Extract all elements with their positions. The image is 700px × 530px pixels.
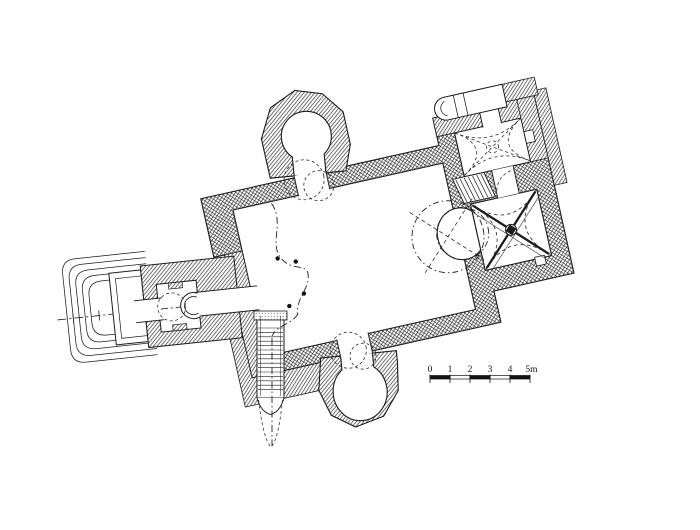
stair-landing [254, 311, 287, 320]
chapel-pilaster-north [168, 282, 183, 289]
scale-label-4: 4 [508, 365, 513, 375]
stair-fan [257, 398, 284, 415]
north-apse-doorway [294, 169, 330, 196]
north-apse [257, 86, 353, 179]
north-apse-wall [257, 86, 353, 179]
east-horseshoe-niche [432, 205, 482, 264]
scale-label-1: 1 [448, 365, 453, 375]
find-spot-dots [275, 252, 309, 309]
scale-label-3: 3 [488, 365, 493, 375]
scale-label-2: 2 [468, 365, 473, 375]
chapel-pilaster-south [173, 323, 188, 330]
vault-boss [504, 223, 517, 236]
scale-bar-segments [430, 376, 530, 380]
south-apse [316, 351, 404, 431]
excavation-edge-line [267, 199, 317, 316]
main-building-group [179, 32, 610, 455]
south-wall-niche [535, 255, 547, 266]
church-floor-plan: 0 1 2 3 4 5m [0, 0, 700, 530]
scale-bar: 0 1 2 3 4 5m [428, 365, 539, 383]
scale-label-5m: 5m [525, 365, 538, 375]
page: 0 1 2 3 4 5m [0, 0, 700, 530]
south-apse-wall [316, 351, 404, 431]
scale-label-0: 0 [428, 365, 433, 375]
chapel-niche-arc [179, 292, 200, 320]
south-apse-doorway [337, 333, 373, 360]
